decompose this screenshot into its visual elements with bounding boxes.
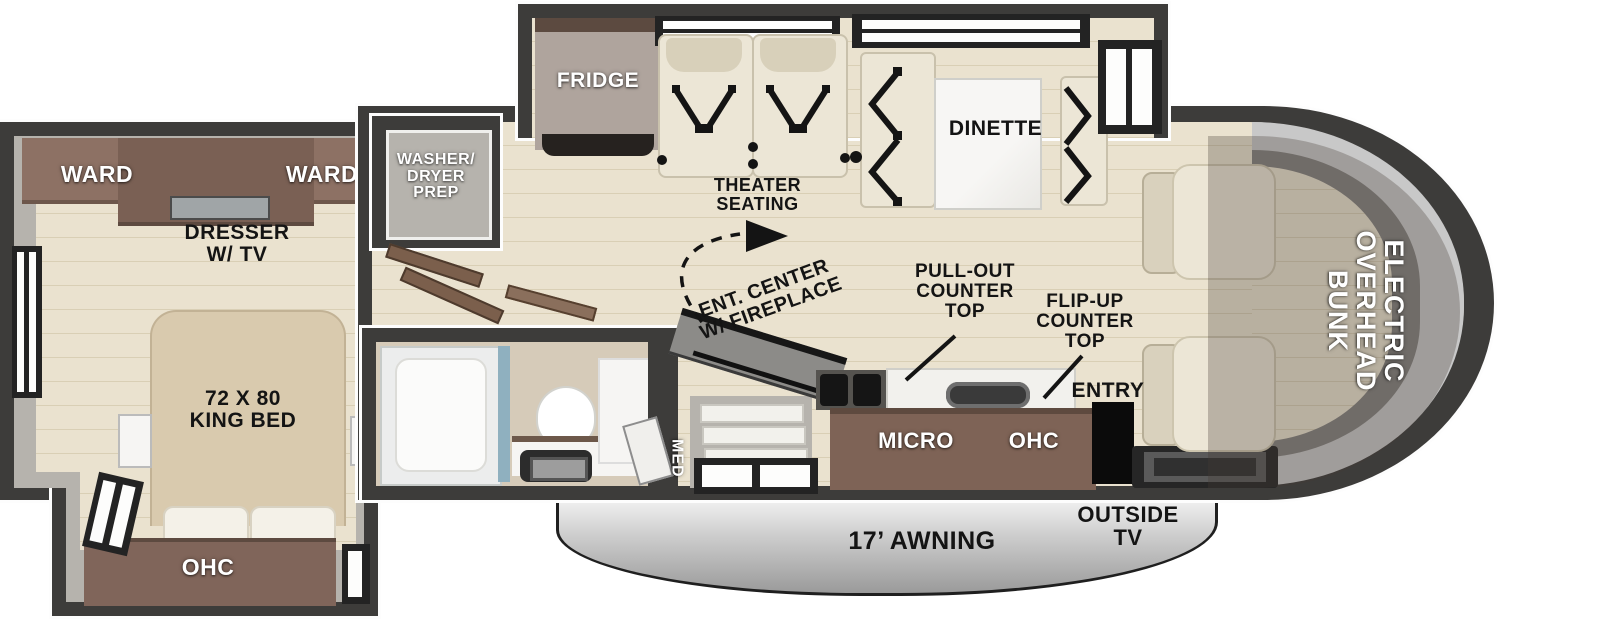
pullout-leader-line [906, 336, 955, 380]
dinette-bench-marks [872, 72, 1088, 202]
pullout-counter-label: PULL-OUT COUNTER TOP [895, 262, 1035, 321]
rv-floorplan: 17’ AWNING OUTSIDE TV WARD WARD DRESSER … [0, 0, 1600, 626]
theater-seat-marks [676, 90, 826, 128]
annotation-overlay [0, 0, 1600, 626]
flow-arrow-head [746, 220, 788, 252]
entry-label: ENTRY [1060, 380, 1156, 402]
flow-arrow-path [682, 234, 740, 322]
dinette-bench-mark-ends [850, 67, 902, 206]
flipup-counter-label: FLIP-UP COUNTER TOP [1015, 292, 1155, 351]
